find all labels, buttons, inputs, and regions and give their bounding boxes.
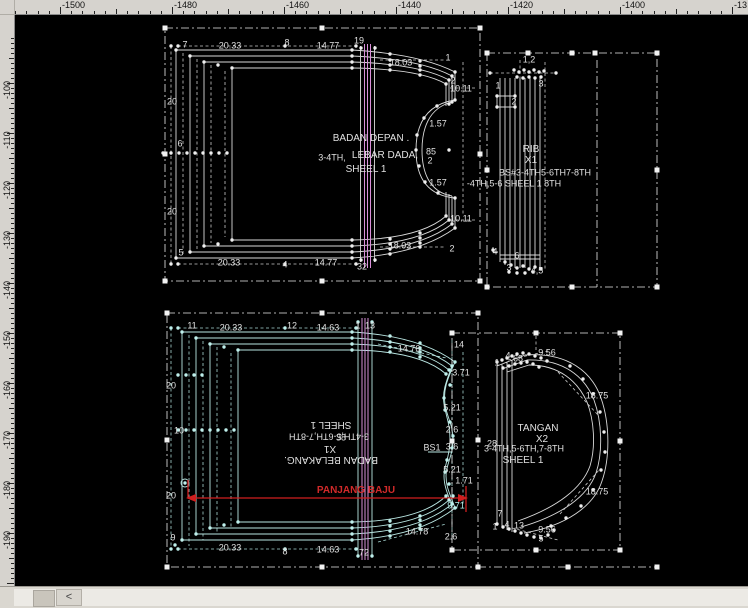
pattern-point[interactable]	[418, 68, 421, 71]
pattern-point[interactable]	[418, 514, 421, 517]
pattern-point[interactable]	[350, 244, 353, 247]
pattern-point[interactable]	[418, 523, 421, 526]
pattern-point[interactable]	[500, 358, 503, 361]
pattern-point[interactable]	[564, 516, 567, 519]
selection-handle[interactable]	[593, 51, 598, 56]
pattern-point[interactable]	[388, 237, 391, 240]
pattern-point[interactable]	[354, 44, 357, 47]
selection-handle[interactable]	[618, 331, 623, 336]
selection-handle[interactable]	[534, 548, 539, 553]
pattern-point[interactable]	[537, 70, 540, 73]
pattern-point[interactable]	[202, 244, 205, 247]
ruler-label: -1440	[398, 0, 421, 10]
pattern-point[interactable]	[447, 368, 450, 371]
pattern-point[interactable]	[350, 538, 353, 541]
pattern-point[interactable]	[388, 340, 391, 343]
pattern-point[interactable]	[453, 70, 456, 73]
pattern-point[interactable]	[539, 356, 542, 359]
pattern-point[interactable]	[354, 326, 357, 329]
ruler-tick	[11, 68, 14, 69]
pattern-point[interactable]	[418, 350, 421, 353]
pattern-point[interactable]	[495, 94, 498, 97]
pattern-point[interactable]	[418, 236, 421, 239]
pattern-point[interactable]	[350, 330, 353, 333]
ruler-label: -190	[2, 526, 12, 554]
selection-handle[interactable]	[526, 51, 531, 56]
pattern-point[interactable]	[388, 58, 391, 61]
pattern-point[interactable]	[414, 148, 417, 151]
pattern-point[interactable]	[388, 252, 391, 255]
ruler-tick	[11, 573, 14, 574]
pattern-point[interactable]	[216, 242, 219, 245]
ruler-tick	[161, 11, 162, 14]
pattern-point[interactable]	[200, 428, 203, 431]
pattern-point[interactable]	[350, 256, 353, 259]
pattern-point[interactable]	[350, 336, 353, 339]
pattern-point[interactable]	[517, 70, 520, 73]
ruler-tick	[11, 218, 14, 219]
pattern-point[interactable]	[185, 151, 188, 154]
pattern-point[interactable]	[521, 264, 524, 267]
pattern-point[interactable]	[537, 365, 540, 368]
selection-handle[interactable]	[618, 439, 623, 444]
pattern-point[interactable]	[180, 538, 183, 541]
selection-handle[interactable]	[478, 26, 483, 31]
selection-handle[interactable]	[655, 168, 660, 173]
pattern-point[interactable]	[552, 528, 555, 531]
pattern-point[interactable]	[174, 48, 177, 51]
pattern-point[interactable]	[174, 256, 177, 259]
pattern-point[interactable]	[354, 547, 357, 550]
pattern-point[interactable]	[453, 360, 456, 363]
ruler-tick	[519, 11, 520, 14]
pattern-point[interactable]	[418, 518, 421, 521]
selection-handle[interactable]	[163, 152, 168, 157]
pattern-point[interactable]	[418, 341, 421, 344]
pattern-point[interactable]	[507, 364, 510, 367]
pattern-point[interactable]	[503, 260, 506, 263]
pattern-point[interactable]	[350, 60, 353, 63]
pattern-point[interactable]	[443, 470, 446, 473]
selection-handle[interactable]	[163, 26, 168, 31]
pattern-point[interactable]	[495, 522, 498, 525]
pattern-point[interactable]	[488, 71, 491, 74]
pattern-point[interactable]	[283, 547, 286, 550]
pattern-point[interactable]	[208, 428, 211, 431]
pattern-point[interactable]	[444, 214, 447, 217]
pattern-point[interactable]	[222, 523, 225, 526]
pattern-point[interactable]	[188, 250, 191, 253]
selection-handle[interactable]	[320, 279, 325, 284]
pattern-point[interactable]	[176, 262, 179, 265]
pattern-point[interactable]	[388, 519, 391, 522]
pattern-point[interactable]	[447, 498, 450, 501]
pattern-point[interactable]	[447, 102, 450, 105]
selection-handle[interactable]	[655, 51, 660, 56]
pattern-point[interactable]	[350, 526, 353, 529]
ruler-tick	[530, 11, 531, 14]
pattern-point[interactable]	[525, 360, 528, 363]
selection-handle[interactable]	[450, 439, 455, 444]
pattern-point[interactable]	[444, 494, 447, 497]
pattern-point[interactable]	[436, 191, 439, 194]
pattern-point[interactable]	[216, 63, 219, 66]
ruler-tick	[642, 11, 643, 14]
pattern-point[interactable]	[442, 396, 445, 399]
pattern-point[interactable]	[515, 75, 518, 78]
pattern-point[interactable]	[224, 428, 227, 431]
pattern-point[interactable]	[359, 46, 362, 49]
selection-handle[interactable]	[476, 311, 481, 316]
pattern-point[interactable]	[418, 64, 421, 67]
pattern-point[interactable]	[512, 68, 515, 71]
pattern-point[interactable]	[184, 428, 187, 431]
pattern-point[interactable]	[388, 534, 391, 537]
pattern-point[interactable]	[216, 428, 219, 431]
pattern-point[interactable]	[356, 320, 359, 323]
pattern-point[interactable]	[527, 70, 530, 73]
pattern-point[interactable]	[591, 392, 594, 395]
pattern-point[interactable]	[173, 543, 176, 546]
pattern-point[interactable]	[208, 342, 211, 345]
pattern-point[interactable]	[513, 362, 516, 365]
horizontal-scrollbar[interactable]: <	[0, 586, 748, 608]
pattern-point[interactable]	[519, 531, 522, 534]
pattern-point[interactable]	[354, 262, 357, 265]
ruler-label: -1400	[622, 0, 645, 10]
pattern-point[interactable]	[422, 116, 425, 119]
pattern-point[interactable]	[444, 82, 447, 85]
selection-handle[interactable]	[566, 565, 571, 570]
pattern-point[interactable]	[236, 520, 239, 523]
ruler-tick	[262, 11, 263, 14]
pattern-point[interactable]	[388, 63, 391, 66]
pattern-point[interactable]	[450, 74, 453, 77]
pattern-point[interactable]	[176, 326, 179, 329]
pattern-point[interactable]	[519, 361, 522, 364]
pattern-point[interactable]	[388, 242, 391, 245]
pattern-point[interactable]	[388, 334, 391, 337]
pattern-point[interactable]	[539, 267, 542, 270]
pattern-point[interactable]	[180, 330, 183, 333]
pattern-point[interactable]	[283, 326, 286, 329]
pattern-point[interactable]	[450, 502, 453, 505]
pattern-point[interactable]	[602, 430, 605, 433]
scrollbar-thumb[interactable]	[33, 590, 55, 607]
pattern-point[interactable]	[423, 180, 426, 183]
pattern-point[interactable]	[554, 71, 557, 74]
pattern-point[interactable]	[225, 151, 228, 154]
sleeve-outline	[497, 355, 608, 533]
pattern-point[interactable]	[579, 504, 582, 507]
pattern-point[interactable]	[447, 148, 450, 151]
selection-handle[interactable]	[478, 279, 483, 284]
pattern-point[interactable]	[491, 248, 494, 251]
pattern-point[interactable]	[533, 265, 536, 268]
pattern-point[interactable]	[176, 547, 179, 550]
pattern-point[interactable]	[521, 351, 524, 354]
pattern-point[interactable]	[418, 245, 421, 248]
pattern-point[interactable]	[451, 494, 454, 497]
pattern-point[interactable]	[603, 450, 606, 453]
pattern-point[interactable]	[509, 263, 512, 266]
pattern-point[interactable]	[418, 73, 421, 76]
ruler-tick	[295, 11, 296, 14]
pattern-point[interactable]	[350, 66, 353, 69]
pattern-point[interactable]	[542, 69, 545, 72]
pattern-point[interactable]	[521, 76, 524, 79]
pattern-point[interactable]	[193, 151, 196, 154]
selection-handle[interactable]	[485, 51, 490, 56]
pattern-point[interactable]	[350, 250, 353, 253]
pattern-point[interactable]	[515, 271, 518, 274]
pattern-point[interactable]	[513, 529, 516, 532]
pattern-point[interactable]	[501, 366, 504, 369]
pattern-point[interactable]	[507, 270, 510, 273]
pattern-point[interactable]	[418, 241, 421, 244]
scrollbar-track[interactable]	[14, 589, 748, 606]
pattern-point[interactable]	[350, 342, 353, 345]
pattern-point[interactable]	[359, 258, 362, 261]
pattern-point[interactable]	[202, 60, 205, 63]
pattern-point[interactable]	[418, 527, 421, 530]
pattern-point[interactable]	[510, 354, 513, 357]
pattern-point[interactable]	[230, 238, 233, 241]
front-selection-box[interactable]	[165, 28, 480, 281]
pattern-point[interactable]	[453, 506, 456, 509]
selection-handle[interactable]	[165, 311, 170, 316]
pattern-point[interactable]	[539, 536, 542, 539]
pattern-point[interactable]	[505, 356, 508, 359]
pattern-point[interactable]	[448, 420, 451, 423]
selection-handle[interactable]	[320, 311, 325, 316]
pattern-point[interactable]	[599, 468, 602, 471]
selection-handle[interactable]	[163, 279, 168, 284]
pattern-point[interactable]	[169, 262, 172, 265]
pattern-point[interactable]	[176, 44, 179, 47]
pattern-point[interactable]	[232, 428, 235, 431]
ruler-tick	[11, 418, 14, 419]
selection-handle[interactable]	[570, 51, 575, 56]
pattern-point[interactable]	[236, 348, 239, 351]
pattern-point[interactable]	[532, 535, 535, 538]
ruler-tick	[463, 11, 464, 14]
pattern-point[interactable]	[208, 526, 211, 529]
pattern-point[interactable]	[418, 59, 421, 62]
ruler-tick	[11, 38, 14, 39]
pattern-point[interactable]	[188, 54, 191, 57]
selection-handle[interactable]	[165, 565, 170, 570]
selection-handle[interactable]	[320, 26, 325, 31]
back-piece-pattern[interactable]	[167, 313, 657, 567]
pattern-point[interactable]	[177, 151, 180, 154]
pattern-point[interactable]	[515, 266, 518, 269]
pattern-point[interactable]	[194, 532, 197, 535]
pattern-point[interactable]	[230, 66, 233, 69]
pattern-point[interactable]	[435, 104, 438, 107]
ruler-tick	[11, 63, 14, 64]
pattern-point[interactable]	[443, 408, 446, 411]
pattern-point[interactable]	[451, 434, 454, 437]
pattern-point[interactable]	[222, 345, 225, 348]
pattern-point[interactable]	[447, 482, 450, 485]
ruler-tick	[11, 373, 14, 374]
selection-handle[interactable]	[476, 565, 481, 570]
pattern-point[interactable]	[192, 428, 195, 431]
pattern-point[interactable]	[444, 372, 447, 375]
pattern-point[interactable]	[448, 383, 451, 386]
pattern-point[interactable]	[525, 533, 528, 536]
pattern-point[interactable]	[418, 346, 421, 349]
pattern-point[interactable]	[598, 410, 601, 413]
selection-handle[interactable]	[618, 548, 623, 553]
pattern-point[interactable]	[450, 222, 453, 225]
selection-handle[interactable]	[478, 152, 483, 157]
pattern-point[interactable]	[418, 231, 421, 234]
pattern-point[interactable]	[350, 238, 353, 241]
pattern-point[interactable]	[515, 352, 518, 355]
pattern-point[interactable]	[568, 364, 571, 367]
pattern-point[interactable]	[176, 373, 179, 376]
pattern-point[interactable]	[169, 547, 172, 550]
pattern-point[interactable]	[531, 270, 534, 273]
pattern-point[interactable]	[522, 68, 525, 71]
selection-handles[interactable]	[163, 26, 660, 570]
pattern-point[interactable]	[283, 262, 286, 265]
pattern-point[interactable]	[201, 151, 204, 154]
selection-handle[interactable]	[655, 285, 660, 290]
pattern-point[interactable]	[209, 151, 212, 154]
pattern-point[interactable]	[507, 527, 510, 530]
pattern-point[interactable]	[415, 133, 418, 136]
pattern-point[interactable]	[388, 345, 391, 348]
pattern-point[interactable]	[532, 68, 535, 71]
ruler-tick	[486, 11, 487, 14]
pattern-point[interactable]	[533, 354, 536, 357]
ruler-tick	[430, 11, 431, 14]
pattern-point[interactable]	[545, 359, 548, 362]
pattern-point[interactable]	[217, 151, 220, 154]
pattern-point[interactable]	[531, 362, 534, 365]
pattern-point[interactable]	[453, 98, 456, 101]
pattern-point[interactable]	[549, 524, 552, 527]
pattern-point[interactable]	[169, 44, 172, 47]
pattern-point[interactable]	[350, 532, 353, 535]
pattern-point[interactable]	[388, 350, 391, 353]
pattern-point[interactable]	[527, 75, 530, 78]
pattern-point[interactable]	[495, 360, 498, 363]
ruler-tick	[396, 7, 397, 14]
pattern-point[interactable]	[192, 373, 195, 376]
selection-handle[interactable]	[655, 565, 660, 570]
pattern-point[interactable]	[418, 355, 421, 358]
pattern-point[interactable]	[533, 76, 536, 79]
pattern-point[interactable]	[539, 75, 542, 78]
selection-handle[interactable]	[476, 438, 481, 443]
pattern-point[interactable]	[183, 481, 186, 484]
rib-piece-pattern[interactable]	[487, 53, 657, 287]
selection-handle[interactable]	[165, 438, 170, 443]
pattern-point[interactable]	[450, 100, 453, 103]
pattern-point[interactable]	[581, 377, 584, 380]
pattern-point[interactable]	[283, 44, 286, 47]
pattern-point[interactable]	[447, 218, 450, 221]
selection-handle[interactable]	[534, 331, 539, 336]
pattern-point[interactable]	[350, 54, 353, 57]
ruler-tick	[239, 11, 240, 14]
ruler-label: -110	[2, 126, 12, 154]
ruler-tick	[306, 11, 307, 14]
pattern-point[interactable]	[370, 320, 373, 323]
pattern-point[interactable]	[388, 68, 391, 71]
pattern-point[interactable]	[356, 554, 359, 557]
pattern-point[interactable]	[373, 258, 376, 261]
rib-selection-box[interactable]	[487, 53, 657, 287]
ruler-tick	[732, 7, 733, 14]
ruler-tick	[217, 11, 218, 14]
pattern-point[interactable]	[388, 247, 391, 250]
pattern-point[interactable]	[176, 428, 179, 431]
pattern-point[interactable]	[184, 373, 187, 376]
selection-handle[interactable]	[485, 285, 490, 290]
selection-handle[interactable]	[485, 168, 490, 173]
pattern-point[interactable]	[350, 48, 353, 51]
pattern-point[interactable]	[527, 267, 530, 270]
pattern-point[interactable]	[388, 52, 391, 55]
pattern-point[interactable]	[194, 336, 197, 339]
selection-handle[interactable]	[320, 565, 325, 570]
ruler-tick	[183, 11, 184, 14]
pattern-point[interactable]	[513, 105, 516, 108]
pattern-point[interactable]	[388, 524, 391, 527]
pattern-point[interactable]	[350, 348, 353, 351]
ruler-tick	[11, 48, 14, 49]
drawing-canvas[interactable]: 720.33814.771918.031210.1120620520.33414…	[0, 0, 748, 607]
ruler-tick	[329, 11, 330, 14]
scroll-left-button[interactable]: <	[56, 589, 82, 606]
pattern-point[interactable]	[169, 326, 172, 329]
pattern-point[interactable]	[527, 352, 530, 355]
pattern-point[interactable]	[523, 271, 526, 274]
pattern-point[interactable]	[453, 226, 456, 229]
pattern-point[interactable]	[200, 373, 203, 376]
pattern-point[interactable]	[513, 94, 516, 97]
pattern-point[interactable]	[447, 78, 450, 81]
pattern-point[interactable]	[450, 446, 453, 449]
length-dimension-line[interactable]	[186, 480, 468, 512]
pattern-point[interactable]	[373, 46, 376, 49]
selection-handle[interactable]	[450, 548, 455, 553]
front-piece-pattern[interactable]	[165, 28, 480, 281]
pattern-point[interactable]	[453, 196, 456, 199]
pattern-point[interactable]	[450, 364, 453, 367]
pattern-point[interactable]	[370, 554, 373, 557]
pattern-point[interactable]	[501, 525, 504, 528]
pattern-point[interactable]	[169, 151, 172, 154]
selection-handle[interactable]	[570, 285, 575, 290]
pattern-point[interactable]	[417, 164, 420, 167]
selection-handle[interactable]	[450, 331, 455, 336]
pattern-point[interactable]	[495, 105, 498, 108]
pattern-point[interactable]	[546, 533, 549, 536]
ruler-tick	[9, 558, 14, 559]
pattern-point[interactable]	[591, 488, 594, 491]
pattern-point[interactable]	[445, 458, 448, 461]
pattern-point[interactable]	[388, 529, 391, 532]
ruler-tick	[474, 11, 475, 14]
ruler-tick	[542, 11, 543, 14]
pattern-point[interactable]	[350, 520, 353, 523]
